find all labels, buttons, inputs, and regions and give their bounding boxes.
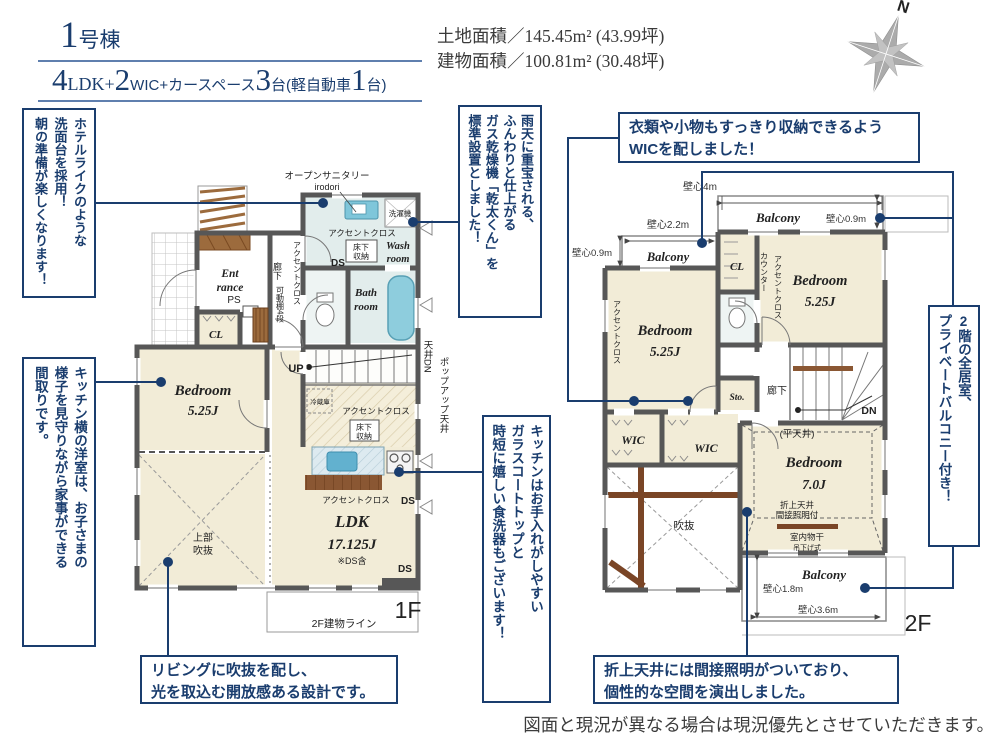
label-yukashita-k1: 床下 bbox=[356, 422, 372, 432]
label-accent-2f-right: アクセントクロス bbox=[774, 255, 783, 319]
label-ps: PS bbox=[227, 295, 241, 306]
label-counter: カウンター bbox=[760, 252, 769, 292]
label-bedroom-2f-right-size: 5.25J bbox=[805, 294, 837, 309]
label-dim-18: 壁心1.8m bbox=[763, 583, 803, 595]
label-open-sanitary: オープンサニタリー bbox=[285, 171, 370, 182]
label-reizouko: 冷蔵庫 bbox=[310, 397, 330, 406]
label-floor-2f: 2F bbox=[905, 610, 932, 636]
label-rouka-1f: 廊下 bbox=[272, 261, 282, 281]
label-balcony-left: Balcony bbox=[646, 250, 690, 264]
callout-line: ガラスコートトップと bbox=[506, 424, 525, 694]
label-bathroom-1: Bath bbox=[354, 287, 377, 299]
label-dn: DN bbox=[861, 405, 876, 417]
label-yukashita-wash: 床下 bbox=[353, 242, 369, 252]
label-monohoshi-1: 室内物干 bbox=[790, 532, 825, 542]
callout-line: 時短に嬉しい食洗器もございます！ bbox=[487, 424, 506, 694]
label-ds-ldk: DS bbox=[398, 564, 412, 575]
label-washroom-2: room bbox=[387, 254, 410, 265]
callout-line: 光を取込む開放感ある設計です。 bbox=[151, 682, 387, 704]
callout-kitchen-side-room: キッチン横の洋室は、お子さまの 様子を見守りながら家事ができる 間取りです。 bbox=[22, 357, 96, 647]
label-ds-wash: DS bbox=[331, 258, 345, 269]
label-cl-1f: CL bbox=[209, 329, 223, 341]
label-rouka-2f: 廊下 bbox=[767, 384, 787, 397]
label-popup-ceiling: ポップアップ天井 bbox=[438, 357, 450, 434]
label-bedroom-1f: Bedroom bbox=[174, 383, 232, 399]
label-yukashita-k2: 収納 bbox=[356, 431, 372, 441]
callout-line: 個性的な空間を演出しました。 bbox=[604, 682, 888, 704]
label-entrance-2: rance bbox=[217, 282, 244, 294]
callout-line: 雨天に重宝される、 bbox=[517, 114, 535, 309]
label-accent-sanitary: アクセントクロス bbox=[328, 228, 396, 238]
callout-gas-dryer: 雨天に重宝される、 ふんわりと仕上がる ガス乾燥機「乾太くん」を 標準設置としま… bbox=[458, 105, 542, 318]
callout-living-void: リビングに吹抜を配し、 光を取込む開放感ある設計です。 bbox=[140, 655, 398, 704]
label-oriage-1: 折上天井 bbox=[780, 500, 814, 510]
label-up: UP bbox=[288, 363, 303, 375]
label-yukashita-wash2: 収納 bbox=[353, 251, 369, 261]
label-bathroom-2: room bbox=[354, 301, 378, 313]
label-accent-2f-left: アクセントクロス bbox=[613, 300, 622, 364]
label-dim-09-right: 壁心0.9m bbox=[826, 213, 866, 225]
label-ldk-size: 17.125J bbox=[328, 537, 377, 553]
label-ldk: LDK bbox=[334, 512, 371, 531]
label-washer: 洗濯機 bbox=[389, 208, 412, 218]
callout-private-balcony: 2階の全居室、 プライベートバルコニー付き！ bbox=[928, 305, 980, 547]
label-bedroom-7-size: 7.0J bbox=[802, 477, 827, 492]
callout-line: 折上天井には間接照明がついており、 bbox=[604, 660, 888, 682]
label-wic-left: WIC bbox=[621, 433, 645, 447]
callout-line: ホテルライクのような bbox=[70, 117, 90, 289]
label-joubu-1: 上部 bbox=[193, 531, 213, 544]
floorplan-page: 1号棟 4LDK+2WIC+カースペース3台(軽自動車1台) 土地面積／145.… bbox=[0, 0, 1000, 750]
callout-line: キッチン横の洋室は、お子さまの bbox=[69, 366, 89, 638]
callout-wic: 衣類や小物もすっきり収納できるよう WICを配しました！ bbox=[618, 112, 920, 163]
callout-kitchen-top: キッチンはお手入れがしやすい ガラスコートトップと 時短に嬉しい食洗器もございま… bbox=[482, 415, 551, 703]
label-bedroom-2f-left: Bedroom bbox=[637, 323, 693, 339]
label-building-line: 2F建物ライン bbox=[312, 617, 377, 630]
compass-icon: N bbox=[836, 0, 942, 104]
label-accent-ldk: アクセントクロス bbox=[322, 495, 390, 505]
label-kadoudana: 可動棚4段 bbox=[276, 286, 285, 323]
label-entrance-1: Ent bbox=[220, 268, 239, 280]
label-joubu-2: 吹抜 bbox=[193, 544, 213, 557]
callout-line: 2階の全居室、 bbox=[953, 314, 973, 538]
label-floor-1f: 1F bbox=[395, 597, 422, 623]
plan-2f: 壁心4m 壁心0.9m Balcony 壁心2.2m 壁心0.9m Balcon… bbox=[572, 180, 948, 636]
label-accent-corridor: アクセントクロス bbox=[293, 241, 302, 305]
label-bedroom-2f-left-size: 5.25J bbox=[650, 344, 682, 359]
label-hira-tenjo: (平天井) bbox=[780, 428, 815, 440]
label-dim-4m: 壁心4m bbox=[683, 180, 717, 193]
label-ds-kitchen: DS bbox=[401, 496, 415, 507]
callout-line: 朝の準備が楽しくなります！ bbox=[31, 117, 51, 289]
callout-hotel-vanity: ホテルライクのような 洗面台を採用！ 朝の準備が楽しくなります！ bbox=[22, 108, 96, 298]
label-dim-09-left: 壁心0.9m bbox=[572, 247, 612, 259]
callout-line: 衣類や小物もすっきり収納できるよう bbox=[629, 117, 909, 139]
callout-line: リビングに吹抜を配し、 bbox=[151, 660, 387, 682]
label-balcony-bottom: Balcony bbox=[801, 567, 846, 582]
canopy-slats bbox=[200, 188, 245, 230]
label-accent-kitchen: アクセントクロス bbox=[342, 406, 410, 416]
callout-line: プライベートバルコニー付き！ bbox=[934, 314, 954, 538]
callout-line: 洗面台を採用！ bbox=[50, 117, 70, 289]
callout-line: ガス乾燥機「乾太くん」を bbox=[482, 114, 500, 309]
label-wic-right: WIC bbox=[694, 441, 718, 455]
label-cl-2f: CL bbox=[730, 261, 744, 273]
callout-line: ふんわりと仕上がる bbox=[500, 114, 518, 309]
label-sto: Sto. bbox=[729, 393, 744, 403]
callout-coffered-ceiling: 折上天井には間接照明がついており、 個性的な空間を演出しました。 bbox=[593, 655, 899, 704]
label-dim-22: 壁心2.2m bbox=[647, 218, 689, 231]
label-ldk-note: ※DS含 bbox=[337, 555, 366, 566]
plan-1f: オープンサニタリー irodori 洗濯機 アクセントクロス 床下 収納 Was… bbox=[137, 171, 449, 632]
label-balcony-top: Balcony bbox=[755, 210, 800, 225]
label-dim-36: 壁心3.6m bbox=[798, 604, 838, 616]
label-monohoshi-2: 吊下げ式 bbox=[793, 543, 821, 552]
label-bedroom-7: Bedroom bbox=[785, 455, 843, 471]
label-fukinuke-2f: 吹抜 bbox=[674, 519, 695, 532]
label-tenjo-dn: 天井DN bbox=[422, 340, 434, 373]
label-bedroom-1f-size: 5.25J bbox=[188, 403, 220, 418]
callout-line: WICを配しました！ bbox=[629, 139, 909, 161]
callout-line: 間取りです。 bbox=[30, 366, 50, 638]
compass-north-label: N bbox=[895, 0, 911, 17]
callout-line: 標準設置としました！ bbox=[465, 114, 483, 309]
label-bedroom-2f-right: Bedroom bbox=[792, 273, 848, 289]
callout-line: キッチンはお手入れがしやすい bbox=[525, 424, 544, 694]
label-oriage-2: 間接照明付 bbox=[776, 510, 819, 520]
disclaimer-text: 図面と現況が異なる場合は現況優先とさせていただきます。 bbox=[523, 712, 994, 737]
label-irodori: irodori bbox=[314, 182, 339, 192]
label-washroom-1: Wash bbox=[386, 241, 410, 252]
callout-line: 様子を見守りながら家事ができる bbox=[50, 366, 70, 638]
